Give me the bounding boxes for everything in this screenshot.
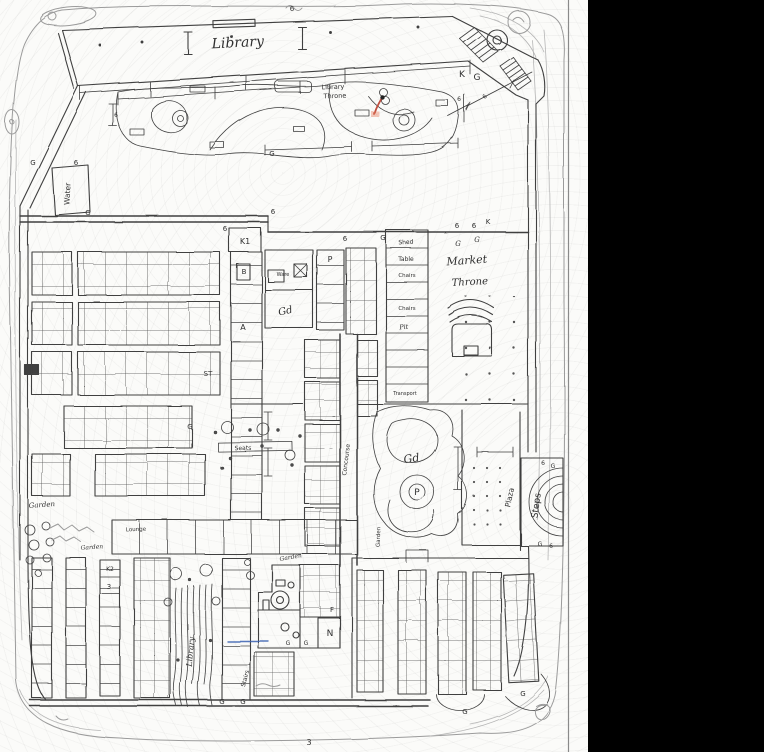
map-label-g-corner: G <box>474 73 481 83</box>
map-label-gd-market: Gd <box>277 305 293 319</box>
map-label-g12: G <box>85 209 90 217</box>
map-label-g16: 6 <box>457 96 461 103</box>
map-label-garden-west: Garden <box>28 500 55 510</box>
map-label-room-f: F <box>330 606 334 614</box>
map-label-g27: 6 <box>290 5 295 13</box>
map-label-g21: G <box>219 698 224 706</box>
hand-drawn-floor-plan: LibraryLibraryThroneWaterK1BASTWareGdPSh… <box>0 0 764 752</box>
map-label-g8: G <box>474 236 480 244</box>
market-stall-grids <box>32 252 220 496</box>
map-label-g23: G <box>286 640 291 647</box>
map-label-market-throne-2: Throne <box>451 276 488 289</box>
map-label-library-throne-2: Throne <box>322 92 346 101</box>
map-label-water-room: Water <box>62 182 72 206</box>
map-label-library-hall: Library <box>210 34 265 53</box>
map-label-g24: G <box>304 640 309 647</box>
map-label-g22: G <box>240 698 245 706</box>
map-label-room-chairs-1: Chairs <box>398 273 415 279</box>
library-garden <box>109 81 464 158</box>
map-label-g25: G <box>520 690 525 698</box>
map-label-mark-st: ST <box>204 370 213 378</box>
map-label-num-3-bottom: 3 <box>306 738 311 747</box>
map-label-cell-b: B <box>242 268 247 276</box>
map-label-g6: K <box>486 218 491 226</box>
map-label-room-transport: Transport <box>392 391 417 397</box>
map-label-g17: 6 <box>541 460 545 467</box>
plaza <box>454 447 513 534</box>
map-label-library-throne-1: Library <box>321 83 344 92</box>
map-label-room-pit: Pit <box>398 323 409 332</box>
map-label-g9: G <box>269 150 274 158</box>
map-label-market-throne-1: Market <box>445 253 488 269</box>
map-label-g18: G <box>551 463 556 470</box>
market-throne-area <box>446 296 522 402</box>
map-label-g15: 6 <box>114 112 118 119</box>
map-label-room-shed: Shed <box>398 239 414 247</box>
scanned-map-page: LibraryLibraryThroneWaterK1BASTWareGdPSh… <box>0 0 764 752</box>
map-label-gd-pond: Gd <box>403 451 420 466</box>
map-label-room-ware: Ware <box>277 272 290 278</box>
map-label-garden-corridor: Garden <box>376 526 383 547</box>
map-label-cell-a: A <box>240 323 246 332</box>
map-label-g4: 6 <box>455 222 460 230</box>
map-label-g20: 6 <box>549 543 553 550</box>
map-label-g11: 6 <box>74 159 79 167</box>
bottom-stacks <box>32 558 294 700</box>
map-label-seats: Seats <box>235 445 252 453</box>
map-label-p-pond: P <box>414 488 420 498</box>
map-label-g1: 6 <box>223 225 228 233</box>
map-label-room-n: N <box>327 629 334 639</box>
map-label-room-chairs-2: Chairs <box>398 306 415 312</box>
map-label-garden-sw: Garden <box>80 543 103 552</box>
scan-black-bar <box>588 0 764 752</box>
ware-building <box>265 248 376 334</box>
map-label-g3: G <box>380 234 385 242</box>
map-label-g13: 6 <box>271 208 276 216</box>
map-label-g19: G <box>538 541 543 548</box>
map-label-g5: 6 <box>472 222 477 230</box>
map-label-steps: Steps <box>530 492 543 519</box>
map-label-room-table: Table <box>397 256 414 263</box>
pond-garden <box>373 406 467 562</box>
map-label-room-k2: K2 <box>106 566 114 573</box>
map-label-lounge: Lounge <box>126 527 147 534</box>
corner-stairs <box>448 16 545 116</box>
map-label-concourse: Concourse <box>341 443 352 476</box>
map-label-g7: G <box>455 240 461 248</box>
map-label-g26: G <box>462 708 467 716</box>
map-label-g28: 6 <box>481 93 489 101</box>
map-label-k-corner: K <box>459 70 466 80</box>
map-label-g10: G <box>30 159 35 167</box>
map-label-g2: 6 <box>343 235 348 243</box>
map-label-g14: G <box>187 423 192 431</box>
map-label-room-p: P <box>328 255 333 264</box>
map-label-library-stacks: Library <box>185 636 197 668</box>
map-label-room-k1: K1 <box>240 237 250 246</box>
map-label-room-3: 3 <box>107 583 111 591</box>
